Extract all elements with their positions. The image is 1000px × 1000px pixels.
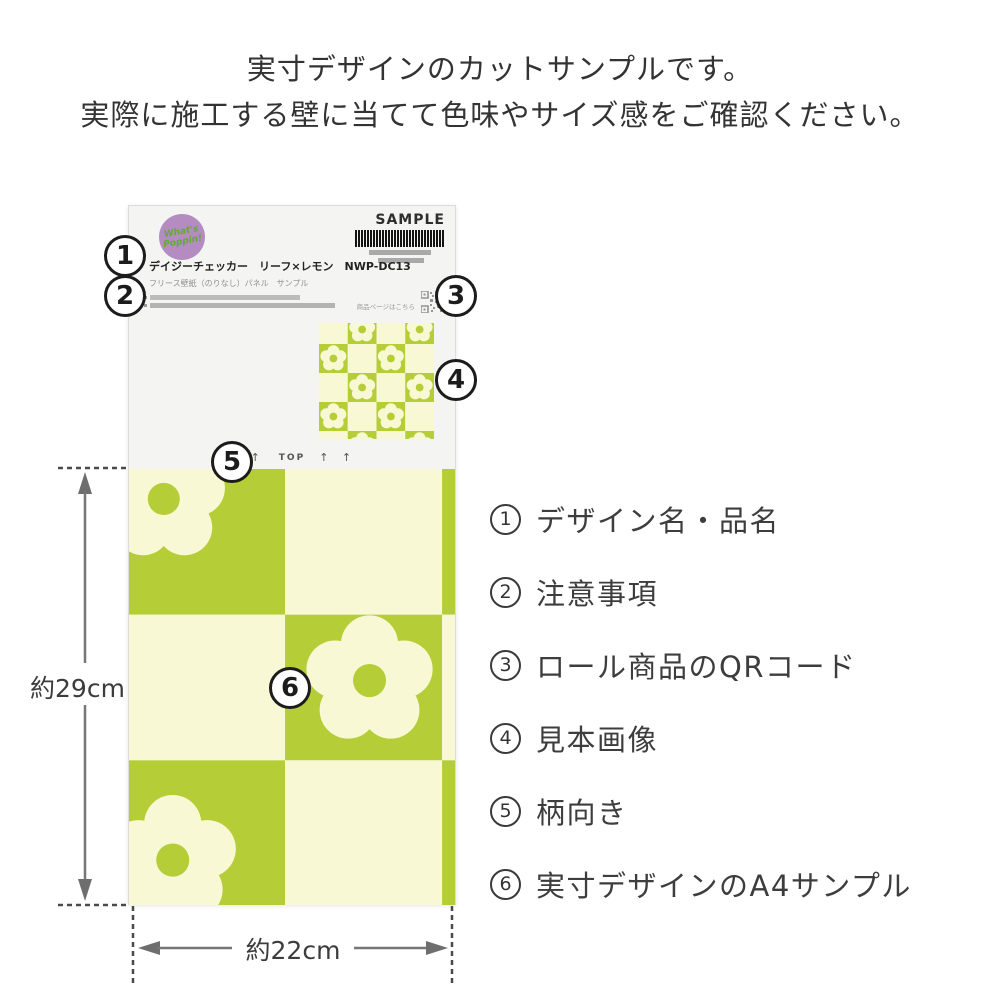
sample-sheet: What's Poppin! SAMPLE デイジーチェッカー リーフ×レモン … <box>128 205 456 905</box>
top-label: TOP <box>279 453 305 463</box>
legend-item-4: 4 見本画像 <box>490 722 912 754</box>
legend-number-6: 6 <box>490 869 521 900</box>
legend-label-5: 柄向き <box>536 790 628 832</box>
callout-2: 2 <box>104 275 146 317</box>
legend-number-2: 2 <box>490 577 521 608</box>
legend-item-2: 2 注意事項 <box>490 576 912 608</box>
callout-4: 4 <box>435 359 477 401</box>
product-name: デイジーチェッカー リーフ×レモン NWP-DC13 <box>149 258 439 274</box>
legend-item-1: 1 デザイン名・品名 <box>490 503 912 535</box>
intro-text: 実寸デザインのカットサンプルです。 実際に施工する壁に当てて色味やサイズ感をご確… <box>0 46 1000 138</box>
legend: 1 デザイン名・品名 2 注意事項 3 ロール商品のQRコード 4 見本画像 5… <box>490 503 912 941</box>
pattern-direction-marking: ↑ ↑ TOP ↑ ↑ <box>129 446 455 469</box>
legend-number-4: 4 <box>490 723 521 754</box>
sample-swatch-image <box>319 323 434 439</box>
intro-line-2: 実際に施工する壁に当てて色味やサイズ感をご確認ください。 <box>0 92 1000 138</box>
legend-label-2: 注意事項 <box>536 571 658 613</box>
note-text-placeholder <box>150 303 335 308</box>
legend-label-1: デザイン名・品名 <box>536 498 780 540</box>
callout-5: 5 <box>211 441 253 483</box>
up-arrows-icon: ↑ ↑ <box>319 451 356 464</box>
legend-label-3: ロール商品のQRコード <box>536 644 856 686</box>
barcode-text-placeholder <box>369 250 431 255</box>
legend-item-6: 6 実寸デザインのA4サンプル <box>490 868 912 900</box>
qr-caption: 商品ページはこちら <box>309 301 415 311</box>
legend-label-4: 見本画像 <box>536 717 658 759</box>
legend-item-3: 3 ロール商品のQRコード <box>490 649 912 681</box>
callout-6: 6 <box>269 667 311 709</box>
barcode <box>355 230 445 247</box>
callout-3: 3 <box>435 275 477 317</box>
legend-number-1: 1 <box>490 504 521 535</box>
legend-label-6: 実寸デザインのA4サンプル <box>536 863 912 905</box>
note-text-placeholder <box>150 295 300 300</box>
product-subtitle: フリース壁紙（のりなし）パネル サンプル <box>149 278 439 289</box>
width-dimension-label: 約22cm <box>238 931 348 967</box>
height-dimension-label: 約29cm <box>20 669 135 705</box>
note-bullet <box>144 304 147 307</box>
legend-number-3: 3 <box>490 650 521 681</box>
sample-label: SAMPLE <box>325 212 445 228</box>
brand-logo: What's Poppin! <box>155 210 208 263</box>
intro-line-1: 実寸デザインのカットサンプルです。 <box>0 46 1000 92</box>
legend-number-5: 5 <box>490 796 521 827</box>
callout-1: 1 <box>104 235 146 277</box>
legend-item-5: 5 柄向き <box>490 795 912 827</box>
